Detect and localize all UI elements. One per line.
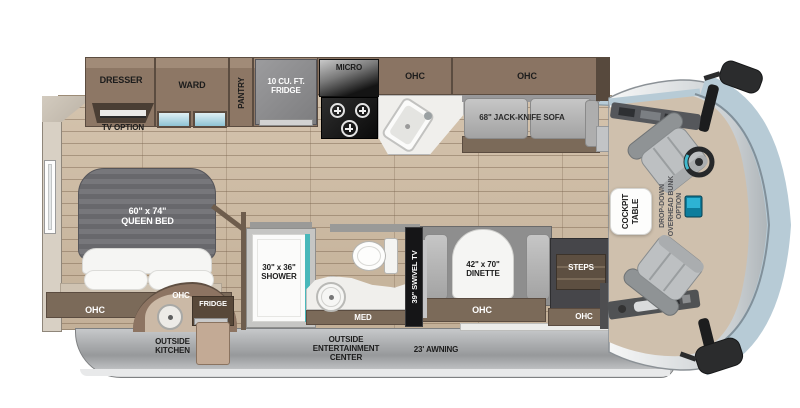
- body-gloss-strip: [80, 369, 670, 376]
- body-shell-bottom: [75, 328, 675, 378]
- bed-pillow: [84, 270, 148, 290]
- burner: [341, 120, 358, 137]
- kitchen-faucet: [424, 112, 432, 120]
- sofa-cushion: [464, 98, 528, 139]
- dinette-ohc: [418, 298, 546, 322]
- steering-hub: [695, 158, 703, 166]
- queen-bed-mattress: [78, 168, 216, 260]
- swivel-tv-edge: [423, 240, 427, 318]
- dinette-table: [452, 229, 514, 299]
- cabinet-divider: [154, 57, 156, 127]
- pantry-label: PANTRY: [231, 62, 252, 124]
- rv-floorplan: DRESSER WARD PANTRY TV OPTION 10 CU. FT.…: [0, 0, 800, 408]
- toilet-tank: [384, 238, 398, 274]
- dinette-bench: [526, 234, 550, 300]
- outside-sink: [157, 304, 183, 330]
- bedroom-window: [44, 160, 56, 234]
- bunk-option-label-wrap: DROP-DOWN OVERHEAD BUNK OPTION: [654, 170, 690, 242]
- cabinet-divider: [228, 57, 230, 127]
- tv-shelf: [92, 103, 154, 123]
- toilet-seat: [357, 246, 381, 266]
- outside-kitchen-door: [196, 322, 230, 365]
- ward-window: [157, 111, 191, 128]
- cabinet-divider: [451, 57, 453, 95]
- tv-screen: [100, 110, 146, 118]
- microwave: [319, 59, 379, 97]
- med-cabinet: [306, 310, 420, 325]
- shower-pan-inner: [257, 239, 301, 317]
- swivel-tv-label-wrap: 39" SWIVEL TV: [405, 227, 423, 327]
- cockpit-table-label: COCKPIT TABLE: [610, 188, 652, 235]
- burner: [330, 103, 345, 118]
- cooktop: [321, 97, 378, 139]
- ward-window: [193, 111, 227, 128]
- cockpit-table-label-wrap: COCKPIT TABLE: [610, 188, 652, 235]
- bath-sink-drain: [329, 295, 334, 300]
- pantry-label-wrap: PANTRY: [231, 62, 252, 124]
- bunk-option-label: DROP-DOWN OVERHEAD BUNK OPTION: [654, 170, 690, 242]
- dinette-bench: [424, 234, 448, 300]
- swivel-tv-label: 39" SWIVEL TV: [405, 227, 423, 327]
- outside-sink-drain: [168, 315, 173, 320]
- shower-pan: [252, 234, 306, 322]
- sofa-cushion: [530, 98, 592, 139]
- window-pane: [48, 164, 52, 230]
- burner: [355, 103, 370, 118]
- toilet-bowl: [352, 241, 386, 271]
- bath-sink: [316, 282, 346, 312]
- cabinet-divider: [252, 57, 254, 127]
- fridge-10cuft: [255, 59, 317, 125]
- fridge-vent-strip: [259, 119, 313, 126]
